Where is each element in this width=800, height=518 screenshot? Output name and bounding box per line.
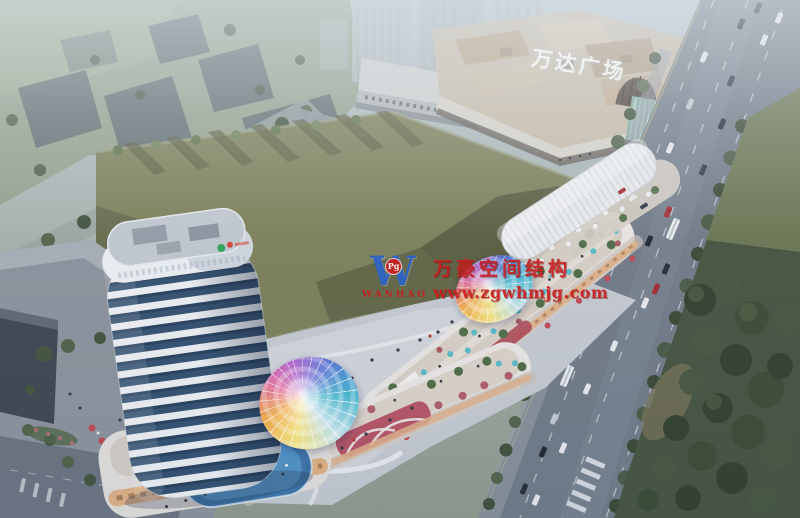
watermark-title: 万豪空间结构 (433, 254, 608, 281)
watermark-logo: W Pg WANHAO (362, 256, 424, 301)
aerial-rendering: 万达广场 W Pg WANHAO 万豪空间结构 www.zgwhmjg.com (0, 0, 800, 518)
logo-name: WANHAO (362, 289, 424, 300)
watermark: W Pg WANHAO 万豪空间结构 www.zgwhmjg.com (362, 254, 608, 302)
watermark-url: www.zgwhmjg.com (433, 283, 608, 302)
logo-badge: Pg (385, 258, 402, 275)
watermark-text: 万豪空间结构 www.zgwhmjg.com (433, 254, 608, 302)
